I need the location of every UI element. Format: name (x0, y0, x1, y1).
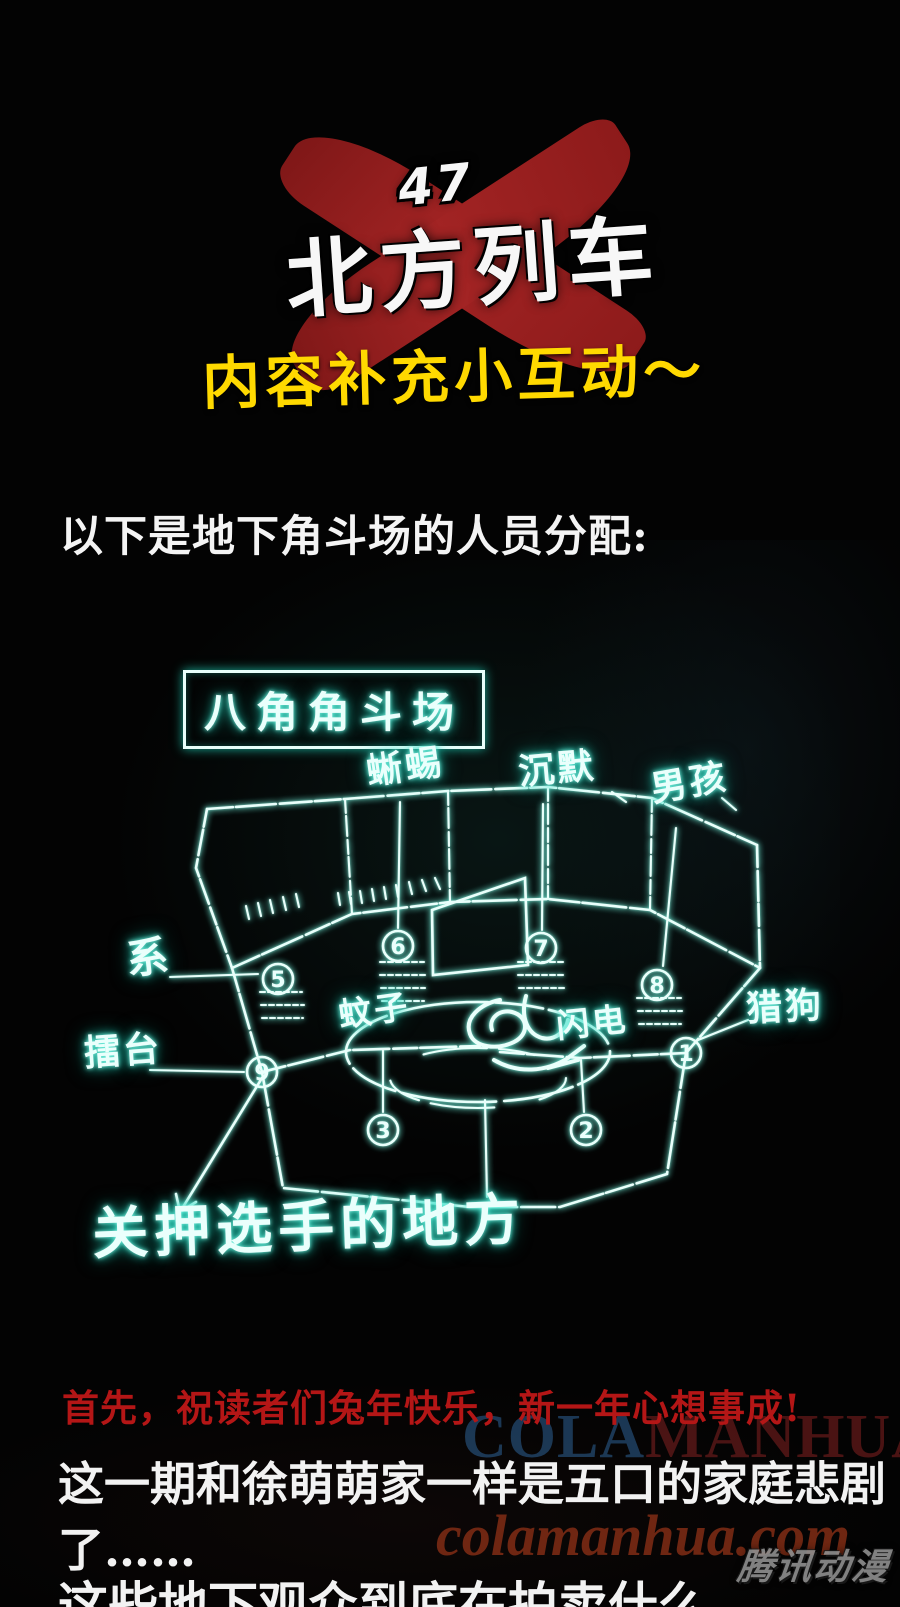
position-2: 2 (571, 1115, 601, 1145)
label-mosquito: 蚊子 (335, 979, 413, 1037)
svg-text:3: 3 (375, 1119, 390, 1144)
label-holding-area: 关押选手的地方 (91, 1174, 528, 1270)
label-boy: 男孩 (646, 748, 732, 813)
label-stage: 擂台 (82, 1019, 163, 1076)
svg-text:6: 6 (390, 935, 405, 960)
arena-right-corner (757, 845, 760, 968)
label-lizard: 蜥蜴 (363, 733, 447, 795)
label-silence: 沉默 (516, 737, 598, 796)
svg-text:1: 1 (678, 1042, 693, 1067)
screen-panel (432, 878, 528, 975)
pit-inner-ellipse (390, 1048, 566, 1108)
svg-text:8: 8 (649, 974, 664, 999)
svg-text:2: 2 (578, 1119, 593, 1144)
position-1: 1 (671, 1038, 701, 1068)
position-8: 8 (642, 970, 672, 1000)
intro-text: 以下是地下角斗场的人员分配: (60, 502, 649, 564)
tencent-comics-logo: 腾讯动漫 (735, 1538, 892, 1590)
new-year-greeting: 首先，祝读者们兔年快乐，新一年心想事成! (62, 1378, 801, 1432)
comic-page: 47 北方列车 内容补充小互动～ 以下是地下角斗场的人员分配: 八角角斗场 (0, 0, 900, 1607)
position-9: 9 (247, 1057, 277, 1087)
position-3: 3 (368, 1115, 398, 1145)
label-hound: 猎狗 (745, 976, 826, 1032)
label-flash: 闪电 (554, 992, 631, 1047)
svg-text:5: 5 (270, 968, 285, 993)
label-tether: 系 (123, 922, 174, 987)
page-subtitle: 内容补充小互动～ (201, 323, 707, 420)
footer-line-2: 这些地下观众到底在拍卖什么， (58, 1566, 758, 1607)
svg-text:7: 7 (533, 937, 548, 962)
ambient-glow (80, 560, 840, 1180)
position-5: 5 (263, 964, 293, 994)
arena-front-rim (232, 968, 760, 1072)
arena-left-edge (196, 809, 232, 968)
position-6: 6 (383, 931, 413, 961)
arena-floor-back-rim (232, 899, 760, 968)
position-7: 7 (526, 933, 556, 963)
wall-dividers (345, 787, 652, 914)
leader-lines (150, 792, 748, 1112)
tally-marks (246, 878, 440, 919)
svg-text:9: 9 (254, 1061, 269, 1086)
